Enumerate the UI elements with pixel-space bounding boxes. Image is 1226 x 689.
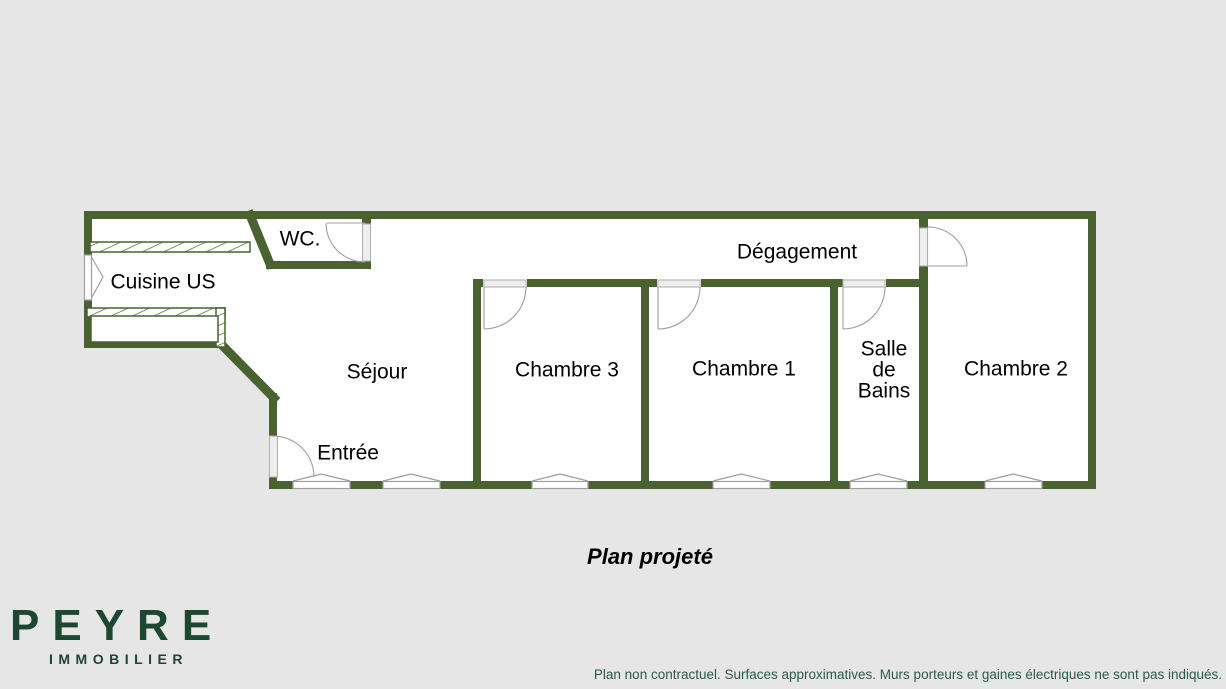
wall-entry-lower: [269, 477, 277, 489]
wall-bottom: [1042, 481, 1096, 489]
room-label-salle-de-bains: Salle de Bains: [858, 339, 911, 402]
wall-chambre1-sdb: [830, 279, 838, 489]
wall-sdb-chambre2-stub: [919, 219, 928, 228]
room-label-chambre-1: Chambre 1: [692, 359, 796, 380]
room-label-sejour: Séjour: [347, 362, 408, 383]
room-label-cuisine-us: Cuisine US: [110, 272, 215, 293]
disclaimer-text: Plan non contractuel. Surfaces approxima…: [594, 667, 1222, 682]
wall-right: [1088, 211, 1096, 489]
wall-bottom: [588, 481, 713, 489]
agency-logo-name: PEYRE: [10, 604, 224, 648]
salle-de-bains-line2: de: [858, 360, 911, 381]
wall-chambre3-chambre1: [641, 279, 649, 489]
wall-sejour-chambre3: [473, 279, 481, 489]
wall-bottom: [907, 481, 985, 489]
room-label-wc: WC.: [280, 229, 321, 250]
floor-plan-page: Cuisine US WC. Dégagement Séjour Entrée …: [0, 0, 1226, 689]
wall-hallway: [527, 279, 657, 287]
salle-de-bains-line1: Salle: [858, 339, 911, 360]
salle-de-bains-line3: Bains: [858, 381, 911, 402]
agency-logo-subtitle: IMMOBILIER: [49, 652, 224, 666]
room-label-degagement: Dégagement: [737, 242, 857, 263]
floor-plan-drawing: [0, 0, 1226, 689]
plan-title: Plan projeté: [587, 544, 713, 570]
apartment-interior: [88, 215, 1092, 485]
kitchen-unit: [91, 316, 218, 342]
wall-hallway: [701, 279, 843, 287]
room-label-chambre-2: Chambre 2: [964, 359, 1068, 380]
wall-bottom: [440, 481, 532, 489]
agency-logo: PEYRE IMMOBILIER: [10, 604, 224, 666]
wall-top: [84, 211, 1096, 219]
wall-sdb-chambre2: [919, 266, 928, 489]
room-label-entree: Entrée: [317, 443, 379, 464]
room-label-chambre-3: Chambre 3: [515, 360, 619, 381]
kitchen-counter-icon: [90, 242, 250, 252]
wall-wc-bottom: [266, 261, 371, 269]
wall-bottom: [350, 481, 383, 489]
